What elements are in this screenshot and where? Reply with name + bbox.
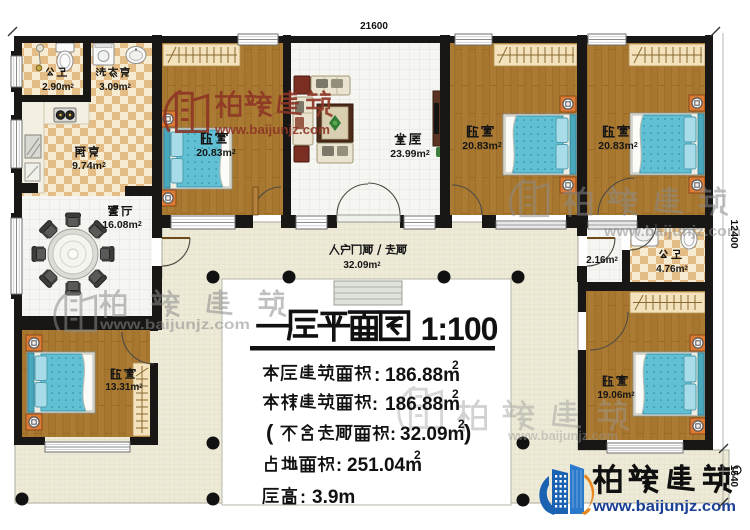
svg-text:(: ( bbox=[266, 420, 274, 445]
svg-text:32.09m: 32.09m bbox=[400, 424, 464, 445]
svg-text:20.83m2: 20.83m2 bbox=[598, 140, 638, 152]
svg-text:20.83m2: 20.83m2 bbox=[196, 147, 236, 159]
svg-text:2.90m2: 2.90m2 bbox=[42, 82, 74, 93]
svg-text:186.88m: 186.88m bbox=[385, 394, 460, 415]
svg-text::: : bbox=[390, 424, 396, 444]
svg-text:www.baijunjz.com: www.baijunjz.com bbox=[603, 223, 741, 240]
svg-text:21600: 21600 bbox=[360, 21, 388, 32]
svg-text::: : bbox=[336, 455, 342, 475]
svg-text::: : bbox=[374, 365, 380, 386]
svg-text:19.06m2: 19.06m2 bbox=[597, 390, 635, 401]
svg-text:16.08m2: 16.08m2 bbox=[102, 219, 142, 231]
svg-text:32.09m2: 32.09m2 bbox=[343, 260, 381, 271]
svg-text:www.baijunjz.com: www.baijunjz.com bbox=[99, 316, 250, 332]
svg-text:12400: 12400 bbox=[728, 219, 740, 248]
svg-text:1:100: 1:100 bbox=[421, 311, 498, 347]
svg-text::: : bbox=[300, 487, 306, 507]
svg-text:3.09m2: 3.09m2 bbox=[99, 82, 131, 93]
svg-text:251.04m: 251.04m bbox=[347, 455, 422, 476]
svg-text:2.16m2: 2.16m2 bbox=[586, 255, 618, 266]
svg-text:3.9m: 3.9m bbox=[312, 487, 355, 508]
svg-text:www.baijunjz.com: www.baijunjz.com bbox=[507, 428, 618, 443]
svg-text:186.88m: 186.88m bbox=[385, 365, 460, 386]
svg-text:2: 2 bbox=[452, 387, 459, 401]
svg-text:2: 2 bbox=[414, 448, 421, 462]
svg-text:13.31m2: 13.31m2 bbox=[105, 382, 143, 393]
svg-text:23.99m2: 23.99m2 bbox=[390, 148, 430, 160]
svg-text:9.74m2: 9.74m2 bbox=[72, 160, 106, 172]
svg-text:4.76m2: 4.76m2 bbox=[656, 264, 688, 275]
svg-text:20.83m2: 20.83m2 bbox=[462, 140, 502, 152]
svg-text:www.baijunjz.com: www.baijunjz.com bbox=[214, 122, 330, 137]
svg-text:): ) bbox=[464, 420, 471, 445]
svg-text:2: 2 bbox=[452, 358, 459, 372]
svg-text::: : bbox=[372, 394, 378, 414]
svg-text:1540: 1540 bbox=[728, 465, 739, 488]
svg-text:www.baijunjz.com: www.baijunjz.com bbox=[592, 498, 736, 515]
